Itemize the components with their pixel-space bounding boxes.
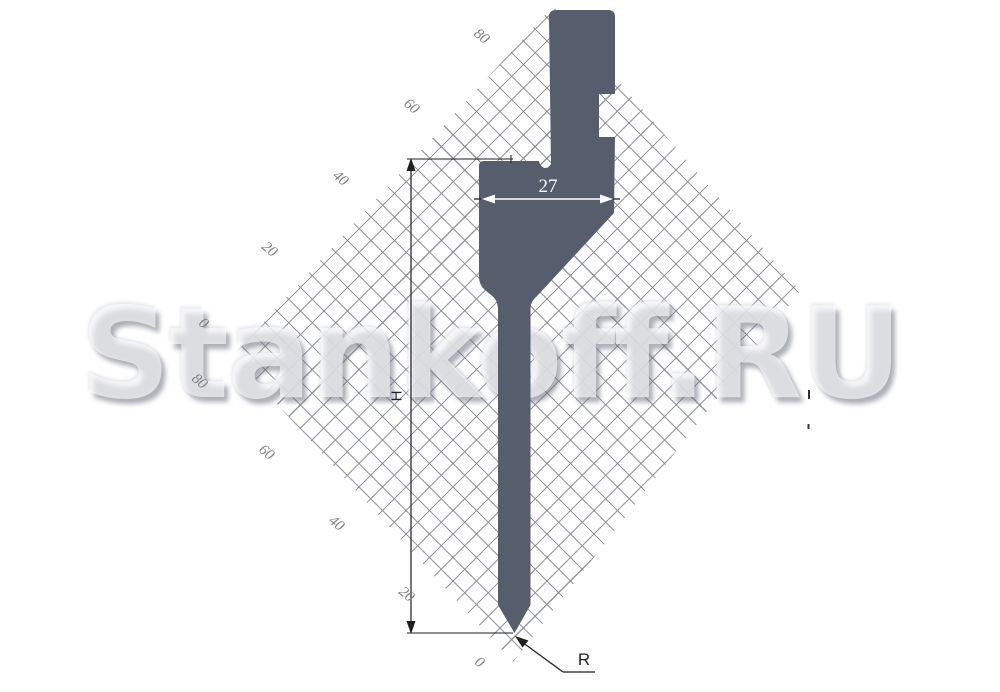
h-dim-arrow-up	[407, 158, 416, 171]
tick-mark-1	[808, 390, 810, 399]
h-dim-arrow-down	[407, 621, 416, 634]
diagram-linework	[0, 0, 1000, 692]
width-dimension-value: 27	[539, 176, 558, 198]
radius-leader-line	[522, 642, 563, 672]
punch-profile	[479, 10, 615, 633]
diagram-canvas: Stankoff.RU 27 H R 80 60 40 20 0	[0, 0, 1000, 692]
height-dimension-label: H	[389, 391, 406, 402]
tick-mark-2	[808, 424, 810, 429]
radius-dimension-label: R	[578, 650, 590, 670]
